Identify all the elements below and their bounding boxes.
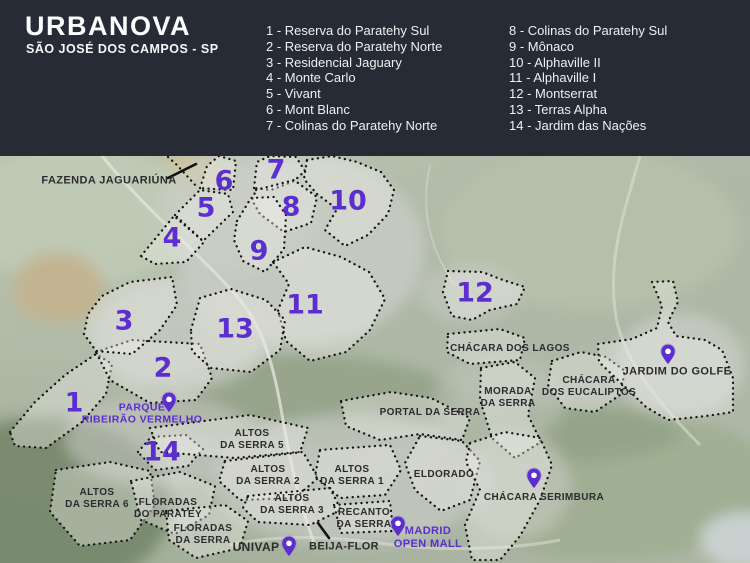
region-number-12: 12: [456, 280, 494, 307]
region-number-13: 13: [216, 316, 254, 343]
label-line: CHÁCARA DOS LAGOS: [450, 343, 570, 355]
label-line: ELDORADO: [414, 469, 474, 481]
legend-item: 2 - Reserva do Paratehy Norte: [266, 39, 442, 55]
legend-item: 8 - Colinas do Paratehy Sul: [509, 23, 667, 39]
label-line: PARQUE: [82, 402, 203, 414]
legend-item: 6 - Mont Blanc: [266, 102, 442, 118]
parque-ribeirao-vermelho-label: PARQUERIBEIRÃO VERMELHO: [82, 402, 203, 427]
region-number-5: 5: [197, 195, 216, 222]
chacara-serimbura-label: CHÁCARA SERIMBURA: [484, 492, 604, 504]
legend-item: 10 - Alphaville II: [509, 55, 667, 71]
region-number-11: 11: [286, 292, 324, 319]
map-pin-icon: [526, 467, 543, 490]
chacara-serimbura-pin: [526, 467, 543, 490]
altos-da-serra-5-label: ALTOSDA SERRA 5: [220, 428, 284, 452]
legend-item: 11 - Alphaville I: [509, 70, 667, 86]
eldorado-label: ELDORADO: [414, 469, 474, 481]
region-number-7: 7: [267, 157, 286, 184]
label-line: ALTOS: [320, 464, 384, 476]
jardim-do-golfe-pin: [660, 343, 677, 366]
legend-item: 9 - Mônaco: [509, 39, 667, 55]
altos-da-serra-2-label: ALTOSDA SERRA 2: [236, 464, 300, 488]
label-line: UNIVAP: [233, 540, 280, 554]
chacara-dos-eucaliptos-label: CHÁCARADOS EUCALIPTOS: [542, 375, 636, 399]
map-pin-icon: [390, 515, 407, 538]
morada-da-serra-label: MORADADA SERRA: [480, 386, 535, 410]
legend-item: 5 - Vivant: [266, 86, 442, 102]
legend-item: 1 - Reserva do Paratehy Sul: [266, 23, 442, 39]
label-line: RIBEIRÃO VERMELHO: [82, 414, 203, 426]
legend-column-0: 1 - Reserva do Paratehy Sul2 - Reserva d…: [266, 23, 442, 134]
label-line: FLORADAS: [174, 523, 233, 535]
region-number-4: 4: [163, 225, 182, 252]
label-line: DA SERRA: [174, 535, 233, 547]
label-line: ALTOS: [65, 487, 129, 499]
label-line: DA SERRA: [480, 398, 535, 410]
region-number-2: 2: [154, 355, 173, 382]
label-line: PORTAL DA SERRA: [380, 407, 481, 419]
label-line: DA SERRA 6: [65, 499, 129, 511]
label-line: RECANTO: [336, 507, 391, 519]
altos-da-serra-6-label: ALTOSDA SERRA 6: [65, 487, 129, 511]
label-line: BEIJA-FLOR: [309, 541, 379, 554]
map-pin-icon: [161, 391, 178, 414]
label-line: ALTOS: [260, 493, 324, 505]
region-number-9: 9: [250, 238, 269, 265]
label-line: DOS EUCALIPTOS: [542, 387, 636, 399]
legend-item: 7 - Colinas do Paratehy Norte: [266, 118, 442, 134]
map-pin-icon: [281, 535, 298, 558]
label-line: DO PARATEY: [134, 509, 202, 521]
label-line: DA SERRA 3: [260, 505, 324, 517]
recanto-da-serra-label: RECANTODA SERRA: [336, 507, 391, 531]
univap-label: UNIVAP: [233, 540, 280, 554]
header: URBANOVA SÃO JOSÉ DOS CAMPOS - SP 1 - Re…: [0, 0, 750, 156]
legend-item: 4 - Monte Carlo: [266, 70, 442, 86]
region-number-8: 8: [282, 194, 301, 221]
legend-item: 12 - Montserrat: [509, 86, 667, 102]
label-line: JARDIM DO GOLFE: [623, 366, 732, 379]
floradas-do-paratey-label: FLORADASDO PARATEY: [134, 497, 202, 521]
label-line: DA SERRA 2: [236, 476, 300, 488]
fazenda-jaguariuna-label: FAZENDA JAGUARIÚNA: [41, 175, 176, 188]
label-line: DA SERRA: [336, 519, 391, 531]
region-number-14: 14: [143, 439, 181, 466]
altos-da-serra-3-label: ALTOSDA SERRA 3: [260, 493, 324, 517]
jardim-do-golfe-label: JARDIM DO GOLFE: [623, 366, 732, 379]
label-line: DA SERRA 5: [220, 440, 284, 452]
urbanova-map-infographic: 1234567891011121314FAZENDA JAGUARIÚNACHÁ…: [0, 0, 750, 563]
label-line: ALTOS: [236, 464, 300, 476]
region-number-3: 3: [115, 308, 134, 335]
beija-flor-label: BEIJA-FLOR: [309, 541, 379, 554]
label-line: OPEN MALL: [394, 538, 462, 551]
univap-pin: [281, 535, 298, 558]
map-pin-icon: [660, 343, 677, 366]
label-line: CHÁCARA SERIMBURA: [484, 492, 604, 504]
floradas-da-serra-label: FLORADASDA SERRA: [174, 523, 233, 547]
label-line: ALTOS: [220, 428, 284, 440]
region-number-1: 1: [65, 390, 84, 417]
madrid-open-mall-pin: [390, 515, 407, 538]
label-line: DA SERRA 1: [320, 476, 384, 488]
region-number-6: 6: [215, 168, 234, 195]
legend-item: 3 - Residencial Jaguary: [266, 55, 442, 71]
legend-column-1: 8 - Colinas do Paratehy Sul9 - Mônaco10 …: [509, 23, 667, 134]
chacara-dos-lagos-label: CHÁCARA DOS LAGOS: [450, 343, 570, 355]
region-number-10: 10: [329, 188, 367, 215]
label-line: MORADA: [480, 386, 535, 398]
page-title: URBANOVA: [25, 11, 191, 42]
label-line: FAZENDA JAGUARIÚNA: [41, 175, 176, 188]
portal-da-serra-label: PORTAL DA SERRA: [380, 407, 481, 419]
altos-da-serra-1-label: ALTOSDA SERRA 1: [320, 464, 384, 488]
label-line: FLORADAS: [134, 497, 202, 509]
page-subtitle: SÃO JOSÉ DOS CAMPOS - SP: [26, 42, 219, 56]
legend-item: 14 - Jardim das Nações: [509, 118, 667, 134]
legend-item: 13 - Terras Alpha: [509, 102, 667, 118]
parque-ribeirao-vermelho-pin: [161, 391, 178, 414]
